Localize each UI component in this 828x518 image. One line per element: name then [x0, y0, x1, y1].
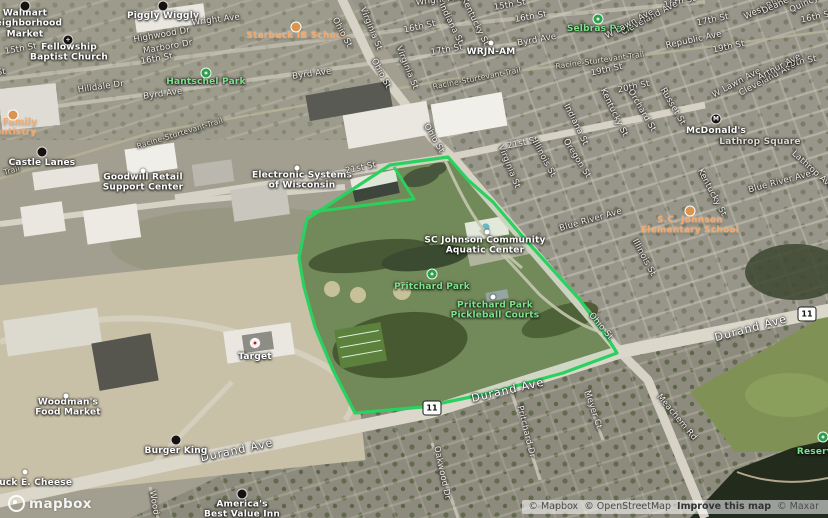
mapbox-logo[interactable]: mapbox — [8, 495, 92, 512]
americas-inn-icon — [237, 489, 248, 500]
scj-aquatic-icon — [485, 230, 490, 235]
chuck-e-cheese-icon — [23, 470, 28, 475]
target-icon — [249, 337, 261, 349]
scj-elementary-icon — [685, 206, 696, 217]
route-11-shield-east: 11 — [798, 307, 817, 322]
walmart-icon — [20, 1, 31, 12]
fellowship-church-icon: + — [63, 35, 74, 46]
route-11-shield-west: 11 — [423, 401, 442, 416]
dentistry-icon — [8, 110, 19, 121]
satellite-imagery — [0, 0, 828, 518]
reservoir-icon — [818, 432, 828, 443]
selbras-park-icon — [593, 14, 604, 25]
improve-this-map-link[interactable]: Improve this map — [677, 501, 771, 512]
pritchard-park-icon — [427, 269, 438, 280]
castle-lanes-icon — [37, 147, 48, 158]
attribution-bar: © Mapbox © OpenStreetMap Improve this ma… — [522, 500, 828, 514]
piggly-wiggly-icon — [158, 1, 169, 12]
attribution-osm-link[interactable]: © OpenStreetMap — [584, 501, 671, 512]
woodmans-icon — [64, 394, 69, 399]
pickleball-icon — [491, 295, 496, 300]
attribution-maxar-link[interactable]: © Maxar — [777, 501, 819, 512]
hantschel-park-icon — [201, 68, 212, 79]
mapbox-logo-icon — [8, 495, 25, 512]
goodwill-icon — [141, 169, 146, 174]
starbuck-school-icon — [291, 22, 302, 33]
wrjn-icon — [489, 41, 494, 46]
attribution-mapbox-link[interactable]: © Mapbox — [528, 501, 578, 512]
burger-king-icon — [171, 435, 182, 446]
electronic-systems-icon — [295, 166, 300, 171]
map-canvas[interactable]: WalmartNeighborhoodMarketPiggly WigglyWr… — [0, 0, 828, 518]
mapbox-logo-text: mapbox — [29, 496, 92, 512]
mcdonalds-icon: M — [711, 114, 722, 125]
